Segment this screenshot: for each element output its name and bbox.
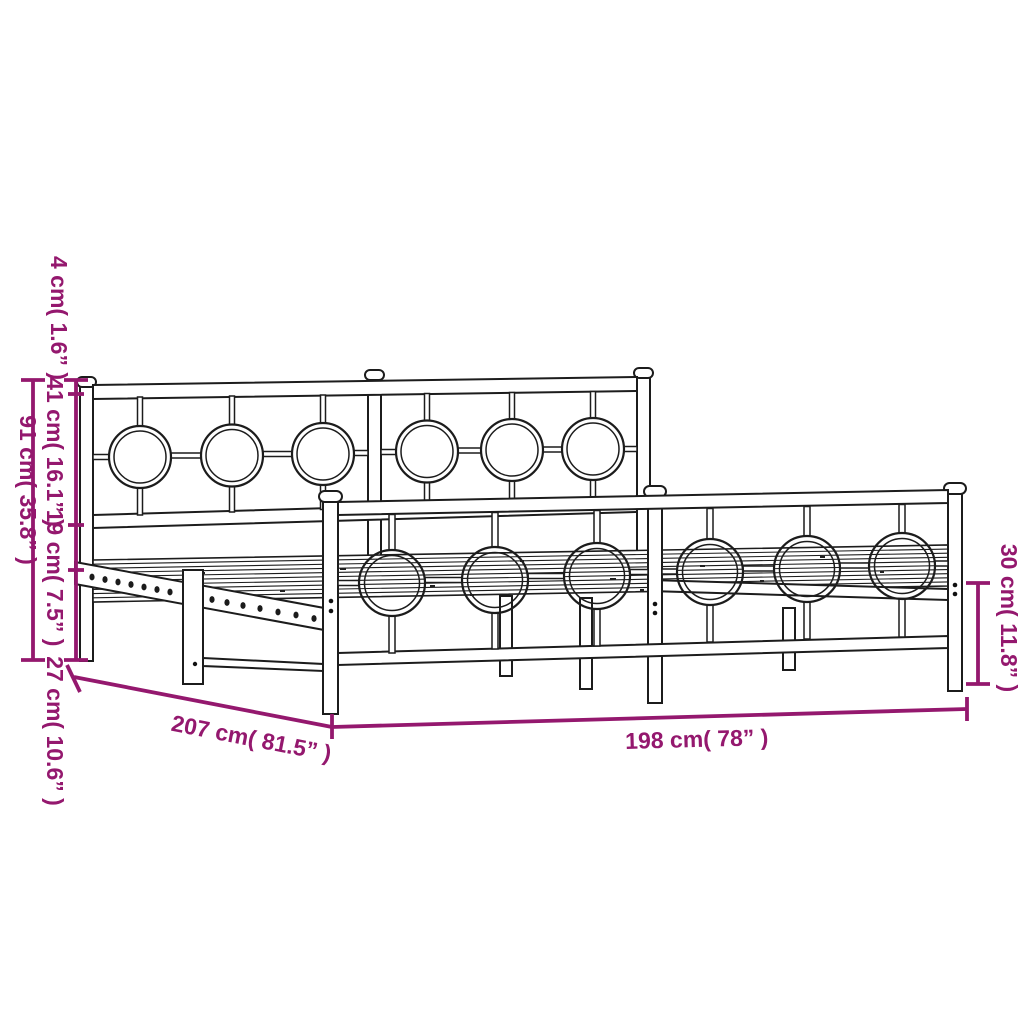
headboard-horizontal-bars [93,447,637,460]
dim-label-30cm: 30 cm( 11.8” ) [996,544,1022,692]
dim-label-4cm: 4 cm( 1.6” ) [46,256,72,380]
dim-label-91cm: 91 cm( 35.8” ) [15,415,41,565]
diagram-canvas: 91 cm( 35.8” ) 4 cm( 1.6” ) 41 cm( 16.1”… [0,0,1024,1024]
headboard-left-post [80,384,93,661]
front-support-leg [183,570,203,684]
headboard-middle-post [368,377,381,556]
footboard-left-post [323,500,338,714]
dim-label-207cm: 207 cm( 81.5” ) [169,710,333,767]
headboard-top-rail [93,377,637,399]
dim-headboard-total-height: 91 cm( 35.8” ) [15,380,45,660]
dim-label-27cm: 27 cm( 10.6” ) [42,656,68,806]
slat-platform [75,545,948,689]
dim-footboard-rail-height: 30 cm( 11.8” ) [966,544,1022,692]
bed-frame-dimension-diagram: 91 cm( 35.8” ) 4 cm( 1.6” ) 41 cm( 16.1”… [0,0,1024,1024]
footboard-right-post [948,492,962,691]
footboard-left-finial [319,491,342,502]
dimension-annotations: 91 cm( 35.8” ) 4 cm( 1.6” ) 41 cm( 16.1”… [15,256,1022,806]
center-support-leg-1 [500,596,512,676]
leg-stretcher [203,658,323,671]
dim-label-198cm: 198 cm( 78” ) [625,724,769,754]
dim-bed-width: 198 cm( 78” ) [332,697,967,754]
center-support-leg-3 [783,608,795,670]
dim-label-41cm: 41 cm( 16.1” ) [42,377,68,527]
dim-label-19cm: 19 cm( 7.5” ) [42,510,68,647]
headboard-middle-finial [365,370,384,380]
footboard-bottom-rail [338,636,948,665]
center-support-leg-2 [580,598,592,689]
footboard-middle-post [648,495,662,703]
